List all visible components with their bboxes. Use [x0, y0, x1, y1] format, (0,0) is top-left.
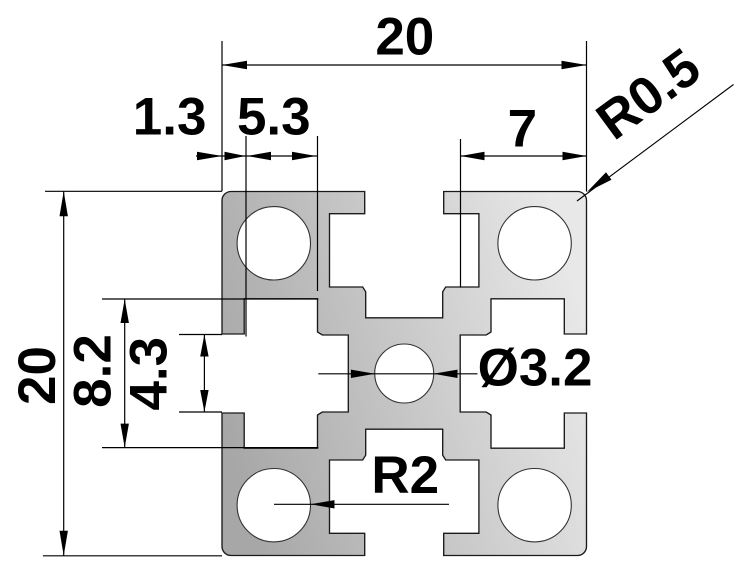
- svg-text:8.2: 8.2: [64, 334, 123, 408]
- svg-text:20: 20: [8, 346, 67, 405]
- svg-text:20: 20: [375, 7, 434, 66]
- svg-text:R2: R2: [371, 446, 439, 505]
- svg-text:7: 7: [508, 100, 537, 159]
- svg-text:5.3: 5.3: [237, 88, 311, 147]
- svg-text:4.3: 4.3: [120, 337, 179, 411]
- svg-text:Ø3.2: Ø3.2: [478, 339, 593, 398]
- svg-text:1.3: 1.3: [133, 88, 207, 147]
